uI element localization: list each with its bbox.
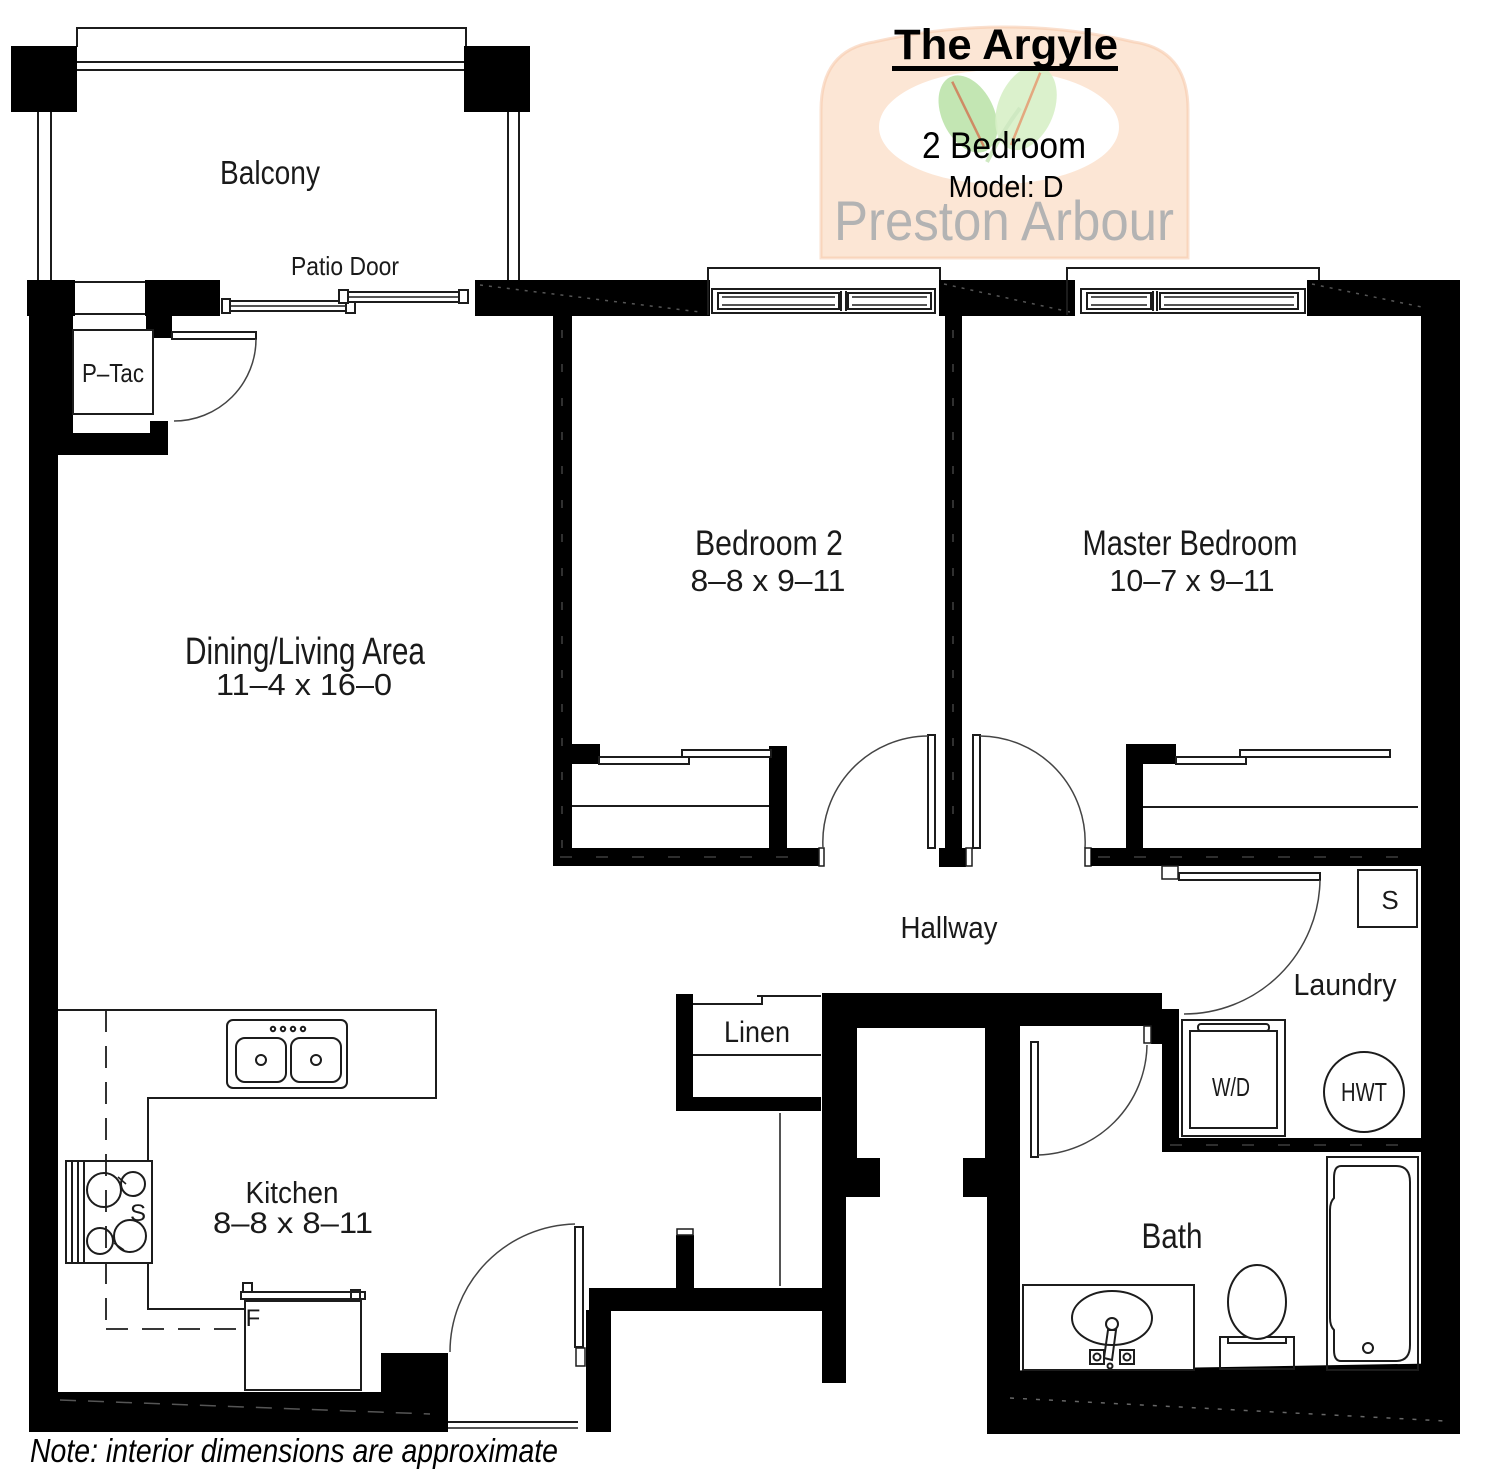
- svg-text:Master Bedroom: Master Bedroom: [1083, 524, 1298, 563]
- svg-text:Laundry: Laundry: [1294, 967, 1397, 1002]
- svg-text:Linen: Linen: [724, 1016, 790, 1049]
- svg-text:8–8 x 8–11: 8–8 x 8–11: [213, 1207, 373, 1240]
- svg-text:2 Bedroom: 2 Bedroom: [922, 125, 1086, 166]
- svg-text:S: S: [130, 1200, 146, 1227]
- svg-text:Model: D: Model: D: [949, 169, 1064, 204]
- svg-text:Patio Door: Patio Door: [291, 251, 399, 281]
- svg-text:S: S: [1381, 885, 1398, 915]
- svg-text:8–8 x 9–11: 8–8 x 9–11: [691, 563, 846, 598]
- svg-text:Hallway: Hallway: [901, 910, 998, 945]
- svg-text:Note: interior dimensions are: Note: interior dimensions are approximat…: [30, 1432, 558, 1469]
- svg-text:11–4 x 16–0: 11–4 x 16–0: [216, 667, 392, 702]
- svg-text:Bedroom 2: Bedroom 2: [695, 524, 843, 563]
- svg-text:Balcony: Balcony: [220, 154, 320, 191]
- svg-text:F: F: [246, 1305, 261, 1332]
- svg-text:W/D: W/D: [1212, 1072, 1250, 1102]
- svg-text:HWT: HWT: [1341, 1077, 1387, 1107]
- svg-text:P–Tac: P–Tac: [82, 358, 144, 388]
- svg-text:Kitchen: Kitchen: [246, 1175, 339, 1210]
- svg-text:Bath: Bath: [1142, 1217, 1203, 1256]
- svg-text:10–7 x 9–11: 10–7 x 9–11: [1110, 563, 1275, 598]
- svg-text:The Argyle: The Argyle: [894, 21, 1118, 69]
